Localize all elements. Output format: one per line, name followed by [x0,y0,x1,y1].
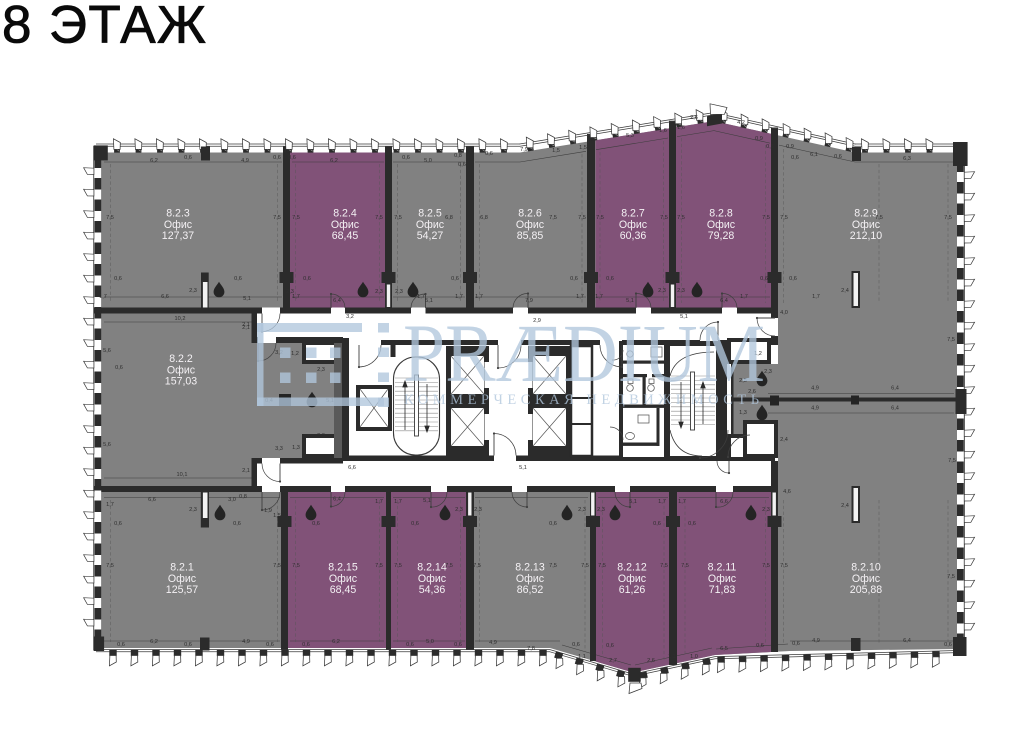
svg-text:7,5: 7,5 [273,563,281,569]
svg-text:1,0: 1,0 [690,654,698,660]
svg-text:85,85: 85,85 [517,230,544,242]
svg-text:1,3: 1,3 [292,445,300,451]
svg-text:10,1: 10,1 [177,472,188,478]
svg-text:Офис: Офис [516,219,545,231]
svg-text:0,6: 0,6 [115,365,123,371]
svg-text:1,7: 1,7 [417,294,425,300]
svg-text:7,5: 7,5 [677,215,685,221]
svg-text:0,6: 0,6 [944,642,952,648]
svg-text:Офис: Офис [619,219,648,231]
svg-text:0,6: 0,6 [792,641,800,647]
svg-text:1,6: 1,6 [677,125,685,131]
svg-text:8.2.4: 8.2.4 [333,208,357,220]
svg-text:7,5: 7,5 [762,215,770,221]
svg-text:3,3: 3,3 [275,446,283,452]
svg-text:6,2: 6,2 [150,639,158,645]
svg-text:5,1: 5,1 [519,465,527,471]
svg-text:7,5: 7,5 [445,563,453,569]
svg-text:2,3: 2,3 [764,369,772,375]
svg-text:7,5: 7,5 [947,337,955,343]
svg-text:60,36: 60,36 [620,230,647,242]
svg-text:7,5: 7,5 [394,215,402,221]
svg-text:7,5: 7,5 [660,215,668,221]
svg-text:7,5: 7,5 [473,563,481,569]
svg-text:7,5: 7,5 [549,563,557,569]
svg-text:8.2.10: 8.2.10 [851,562,881,574]
svg-text:1,6: 1,6 [659,128,667,134]
svg-text:0,8: 0,8 [239,494,247,500]
svg-text:Офис: Офис [418,573,447,585]
svg-text:Офис: Офис [708,573,737,585]
svg-text:7,5: 7,5 [581,563,589,569]
svg-text:Офис: Офис [168,573,197,585]
svg-text:0,6: 0,6 [402,155,410,161]
svg-text:Офис: Офис [167,364,196,376]
svg-text:6,2: 6,2 [332,639,340,645]
svg-text:6,6: 6,6 [161,294,169,300]
svg-text:5,1: 5,1 [423,498,431,504]
svg-text:0,9: 0,9 [755,136,763,142]
svg-text:1,5: 1,5 [579,145,587,151]
svg-text:6,5: 6,5 [720,646,728,652]
svg-text:8.2.11: 8.2.11 [708,562,737,574]
svg-text:4,9: 4,9 [241,158,249,164]
svg-text:2,3: 2,3 [677,288,685,294]
svg-text:3,0: 3,0 [228,497,236,503]
svg-text:7,5: 7,5 [106,563,114,569]
svg-text:2,3: 2,3 [375,289,383,295]
svg-text:4,9: 4,9 [242,639,250,645]
svg-text:2,3: 2,3 [317,367,325,373]
svg-text:4,9: 4,9 [812,638,820,644]
svg-text:8.2.12: 8.2.12 [617,562,647,574]
svg-text:8 ЭТАЖ: 8 ЭТАЖ [2,0,207,55]
svg-text:2,3: 2,3 [658,288,666,294]
svg-text:8.2.6: 8.2.6 [518,208,542,220]
svg-text:7,5: 7,5 [549,215,557,221]
svg-text:2,6: 2,6 [647,658,655,664]
svg-text:0,6: 0,6 [791,155,799,161]
svg-text:4,9: 4,9 [489,640,497,646]
svg-text:7,5: 7,5 [780,563,788,569]
svg-text:8.2.15: 8.2.15 [328,562,358,574]
svg-text:7,5: 7,5 [948,458,956,464]
svg-text:68,45: 68,45 [330,584,357,596]
svg-text:0,6: 0,6 [302,642,310,648]
svg-text:1,7: 1,7 [740,294,748,300]
svg-text:8.2.7: 8.2.7 [621,208,645,220]
svg-text:0,6: 0,6 [549,521,557,527]
svg-text:127,37: 127,37 [162,230,195,242]
svg-text:Офис: Офис [852,573,881,585]
svg-text:1,7: 1,7 [475,294,483,300]
svg-text:8.2.3: 8.2.3 [166,208,190,220]
svg-text:1,7: 1,7 [106,502,114,508]
svg-text:4,9: 4,9 [811,406,819,412]
svg-text:8.2.2: 8.2.2 [169,353,193,365]
svg-text:0,6: 0,6 [756,643,764,649]
svg-text:2,6: 2,6 [690,115,698,121]
svg-text:6,8: 6,8 [445,215,453,221]
svg-text:0,6: 0,6 [234,276,242,282]
svg-text:1,1: 1,1 [668,654,676,660]
svg-text:157,03: 157,03 [165,376,198,388]
svg-text:0,6: 0,6 [766,144,774,150]
svg-text:8.2.8: 8.2.8 [709,208,733,220]
svg-text:3,2: 3,2 [346,314,354,320]
svg-text:6,1: 6,1 [810,152,818,158]
svg-text:2,3: 2,3 [395,289,403,295]
svg-text:2,3: 2,3 [578,507,586,513]
svg-text:4,6: 4,6 [783,489,791,495]
svg-text:6,2: 6,2 [150,158,158,164]
svg-text:0,6: 0,6 [485,151,493,157]
svg-text:7,5: 7,5 [596,215,604,221]
svg-text:5,0: 5,0 [426,639,434,645]
svg-text:7,5: 7,5 [598,563,606,569]
svg-text:0,6: 0,6 [184,155,192,161]
svg-text:7,5: 7,5 [762,563,770,569]
svg-text:0,6: 0,6 [688,521,696,527]
svg-text:6,6: 6,6 [720,499,728,505]
svg-text:71,83: 71,83 [709,584,736,596]
svg-text:7,5: 7,5 [273,215,281,221]
svg-text:0,6: 0,6 [454,642,462,648]
svg-text:0,6: 0,6 [570,276,578,282]
svg-text:2,3: 2,3 [762,507,770,513]
svg-text:2,3: 2,3 [189,507,197,513]
svg-text:6,8: 6,8 [480,215,488,221]
svg-text:4,2: 4,2 [737,120,745,126]
svg-text:1,3: 1,3 [739,410,747,416]
svg-text:61,26: 61,26 [619,584,646,596]
svg-text:7,5: 7,5 [681,563,689,569]
svg-text:1,7: 1,7 [292,294,300,300]
svg-text:0,6: 0,6 [273,155,281,161]
svg-text:0,6: 0,6 [114,276,122,282]
svg-text:0,6: 0,6 [312,521,320,527]
svg-text:Офис: Офис [164,219,193,231]
svg-text:0,6: 0,6 [266,642,274,648]
svg-text:0,6: 0,6 [789,276,797,282]
svg-text:7,9: 7,9 [525,298,533,304]
svg-text:2,4: 2,4 [780,437,788,443]
svg-text:2,4: 2,4 [841,503,849,509]
svg-text:0,6: 0,6 [303,276,311,282]
svg-text:7,5: 7,5 [944,215,952,221]
svg-text:6,4: 6,4 [333,497,341,503]
svg-text:2,1: 2,1 [242,468,250,474]
svg-text:7,5: 7,5 [394,563,402,569]
svg-text:2,3: 2,3 [455,507,463,513]
svg-text:0,6: 0,6 [117,642,125,648]
svg-text:6,4: 6,4 [891,386,899,392]
svg-text:0,9: 0,9 [786,144,794,150]
svg-text:1,5: 1,5 [552,148,560,154]
svg-text:5,3: 5,3 [626,133,634,139]
svg-text:4,9: 4,9 [811,386,819,392]
svg-text:0,6: 0,6 [458,162,466,168]
svg-text:Офис: Офис [516,573,545,585]
svg-text:5,1: 5,1 [629,499,637,505]
svg-text:0,8: 0,8 [454,153,462,159]
svg-text:0,6: 0,6 [653,521,661,527]
svg-text:212,10: 212,10 [850,230,883,242]
svg-text:Офис: Офис [416,219,445,231]
svg-text:6,4: 6,4 [720,298,728,304]
svg-text:79,28: 79,28 [708,230,735,242]
svg-text:6,3: 6,3 [903,156,911,162]
svg-text:1,7: 1,7 [678,499,686,505]
svg-text:Офис: Офис [618,573,647,585]
svg-text:4,0: 4,0 [780,310,788,316]
svg-text:7,5: 7,5 [106,215,114,221]
svg-text:1,7: 1,7 [375,499,383,505]
svg-text:1,1: 1,1 [578,654,586,660]
svg-text:0,6: 0,6 [184,642,192,648]
svg-text:5,1: 5,1 [425,298,433,304]
svg-text:0,6: 0,6 [114,521,122,527]
svg-text:6,4: 6,4 [891,406,899,412]
svg-text:2,3: 2,3 [597,507,605,513]
svg-text:0,6: 0,6 [233,521,241,527]
svg-text:0,6: 0,6 [606,643,614,649]
svg-text:1,2: 1,2 [291,351,299,357]
svg-text:2,7: 2,7 [609,658,617,664]
svg-text:7,5: 7,5 [578,215,586,221]
svg-text:PRÆDIUM: PRÆDIUM [403,307,765,399]
svg-text:6,6: 6,6 [348,465,356,471]
svg-text:6,6: 6,6 [148,497,156,503]
svg-text:6,4: 6,4 [333,298,341,304]
svg-text:1,7: 1,7 [576,294,584,300]
svg-text:7,5: 7,5 [947,574,955,580]
svg-text:Офис: Офис [329,573,358,585]
svg-text:2,3: 2,3 [474,507,482,513]
svg-text:1,7: 1,7 [99,294,107,300]
svg-text:2,1: 2,1 [242,322,250,328]
svg-text:54,36: 54,36 [419,584,446,596]
svg-text:8.2.14: 8.2.14 [417,562,447,574]
svg-text:5,0: 5,0 [424,158,432,164]
svg-text:5,6: 5,6 [103,442,111,448]
svg-text:7,5: 7,5 [375,215,383,221]
svg-text:68,45: 68,45 [332,230,359,242]
svg-text:8.2.13: 8.2.13 [515,562,545,574]
svg-text:0,6: 0,6 [606,276,614,282]
svg-text:1,7: 1,7 [812,294,820,300]
svg-text:Офис: Офис [707,219,736,231]
svg-text:7,8: 7,8 [527,646,535,652]
svg-text:10,2: 10,2 [175,316,186,322]
svg-text:2,3: 2,3 [317,433,325,439]
svg-text:8.2.1: 8.2.1 [170,562,194,574]
svg-text:0,6: 0,6 [288,155,296,161]
svg-text:2,3: 2,3 [189,288,197,294]
svg-text:54,27: 54,27 [417,230,444,242]
svg-text:2,4: 2,4 [841,288,849,294]
svg-text:0,6: 0,6 [451,276,459,282]
svg-text:5,1: 5,1 [243,296,251,302]
svg-text:0,6: 0,6 [406,642,414,648]
svg-text:205,88: 205,88 [850,584,883,596]
svg-text:1,7: 1,7 [455,294,463,300]
svg-text:КОММЕРЧЕСКАЯ НЕДВИЖИМОСТЬ: КОММЕРЧЕСКАЯ НЕДВИЖИМОСТЬ [404,392,764,408]
svg-text:7,9: 7,9 [520,147,528,153]
svg-text:0,6: 0,6 [834,154,842,160]
svg-text:1,7: 1,7 [658,499,666,505]
svg-text:1,7: 1,7 [595,294,603,300]
svg-text:7,5: 7,5 [375,563,383,569]
svg-text:7,5: 7,5 [875,215,883,221]
svg-text:7,5: 7,5 [292,563,300,569]
svg-text:Офис: Офис [331,219,360,231]
svg-text:0,6: 0,6 [572,642,580,648]
svg-text:8.2.5: 8.2.5 [418,208,442,220]
svg-text:6,2: 6,2 [330,158,338,164]
svg-text:7,5: 7,5 [780,215,788,221]
svg-text:1,7: 1,7 [394,499,402,505]
svg-text:0,6: 0,6 [411,521,419,527]
svg-text:0,6: 0,6 [760,276,768,282]
svg-text:5,1: 5,1 [626,298,634,304]
svg-text:6,4: 6,4 [903,638,911,644]
svg-text:7,5: 7,5 [292,215,300,221]
svg-text:1,5: 1,5 [273,513,281,519]
svg-text:7,5: 7,5 [660,563,668,569]
svg-text:5,6: 5,6 [103,348,111,354]
svg-text:125,57: 125,57 [166,584,199,596]
svg-text:86,52: 86,52 [517,584,544,596]
svg-text:1,9: 1,9 [264,508,272,514]
